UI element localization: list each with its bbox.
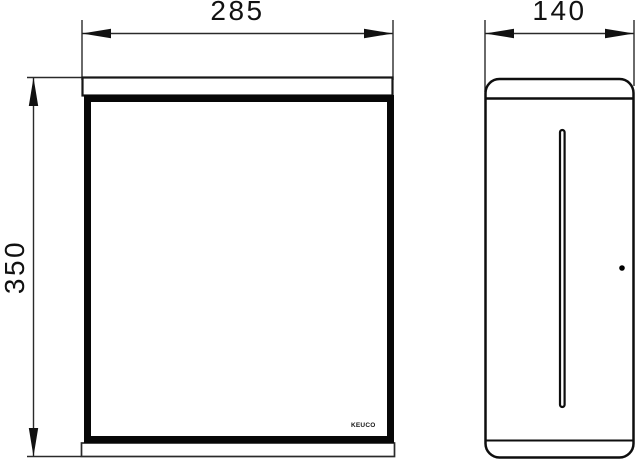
dimension-drawing (0, 0, 640, 462)
front-view-body-frame (88, 99, 391, 440)
side-view-slot (560, 130, 565, 407)
brand-logo: KEUCO (351, 422, 375, 429)
width-arrow-left (82, 29, 111, 38)
front-view-top-lid (83, 78, 393, 96)
technical-drawing-page: 285 140 350 KEUCO (0, 0, 640, 462)
width-dimension (82, 20, 393, 80)
side-view (486, 79, 634, 458)
height-arrow-bottom (29, 428, 38, 457)
depth-arrow-left (485, 29, 514, 38)
side-view-lock-dot (619, 265, 625, 271)
width-arrow-right (364, 29, 393, 38)
height-dimension (27, 78, 82, 457)
width-dimension-label: 285 (193, 0, 283, 25)
front-view-bottom-cap (82, 443, 395, 457)
front-view (82, 78, 395, 457)
height-arrow-top (29, 78, 38, 107)
height-dimension-label: 350 (1, 222, 29, 312)
depth-arrow-right (605, 29, 634, 38)
depth-dimension-label: 140 (515, 0, 605, 25)
